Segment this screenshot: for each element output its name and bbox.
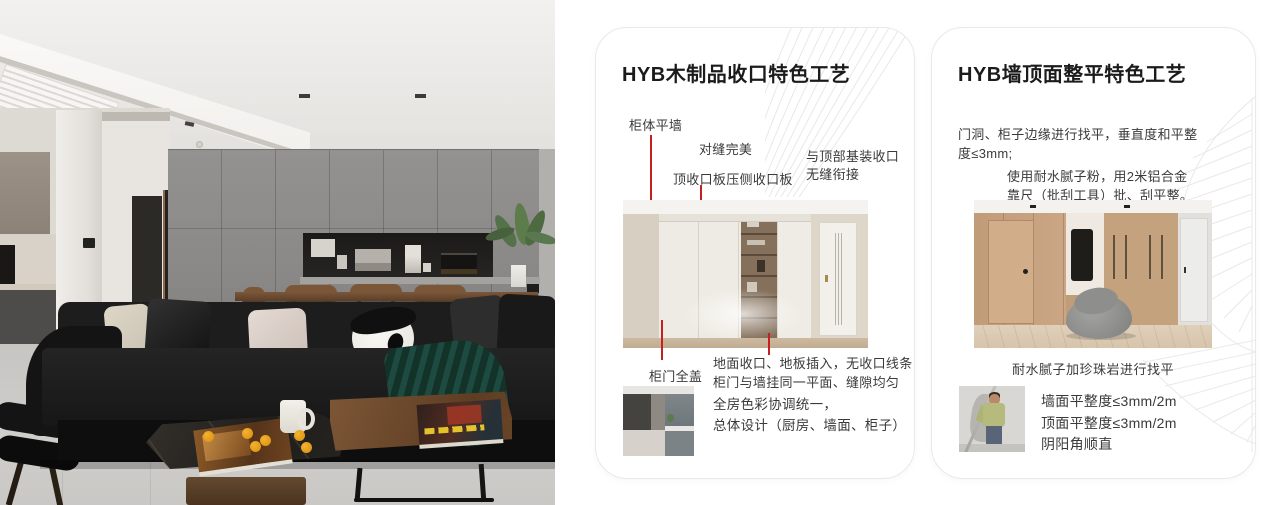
table-crossbar <box>354 498 494 502</box>
pod-coffee-maker <box>405 245 421 273</box>
vintage-radio <box>441 253 477 274</box>
handle-groove <box>1113 235 1115 279</box>
table-leg <box>479 464 487 502</box>
mug-handle <box>297 408 315 430</box>
photo-ceiling <box>974 200 1212 213</box>
door-handle <box>825 275 828 282</box>
magazine-title-text <box>424 424 484 434</box>
thumb-plant <box>667 414 674 422</box>
flatness-specs: 墙面平整度≤3mm/2m 顶面平整度≤3mm/2m 阴阳角顺直 <box>1041 391 1177 456</box>
callout-perfect-seam: 对缝完美 <box>699 139 752 158</box>
magazine <box>417 399 504 449</box>
light-switch <box>83 238 95 248</box>
ceiling-vent <box>299 94 310 98</box>
wardrobe-room-photo <box>974 200 1212 348</box>
coffee-grinder <box>337 255 347 269</box>
summary-line1: 全房色彩协调统一， <box>713 394 906 415</box>
hallway-soffit <box>102 112 170 121</box>
downlight <box>1030 205 1036 208</box>
paragraph1-line1: 门洞、柜子边缘进行找平，垂直度和平整 <box>958 125 1197 144</box>
door-handle <box>1023 269 1028 274</box>
downlight <box>1124 205 1130 208</box>
handle-groove <box>1161 235 1163 279</box>
coffee-bar-niche <box>303 233 493 278</box>
worker-thumbnail <box>959 386 1025 452</box>
thumb-lower-cabinet <box>665 431 694 456</box>
kumquat-fruit <box>203 431 214 442</box>
thumb-floor <box>623 430 667 456</box>
image-caption: 耐水腻子加珍珠岩进行找平 <box>974 359 1212 378</box>
kumquat-fruit <box>260 435 271 446</box>
callout-top-joint: 与顶部基装收口 无缝衔接 <box>806 148 899 184</box>
card1-title: HYB木制品收口特色工艺 <box>622 58 850 87</box>
kitchen-appliance <box>0 245 15 284</box>
ceiling-sensor <box>196 141 203 148</box>
leveling-paragraph-1: 门洞、柜子边缘进行找平，垂直度和平整 度≤3mm; <box>958 125 1197 163</box>
card-wall-leveling-craft: HYB墙顶面整平特色工艺 门洞、柜子边缘进行找平，垂直度和平整 度≤3mm; 使… <box>931 27 1256 479</box>
door-stripe-detail <box>835 233 842 325</box>
page: HYB木制品收口特色工艺 柜体平墙 对缝完美 顶收口板压侧收口板 与顶部基装收口… <box>0 0 1280 505</box>
render-room-door <box>819 222 857 336</box>
render-ceiling <box>623 200 868 215</box>
thumb-dark-wall <box>623 394 653 430</box>
ceiling-vent <box>415 94 426 98</box>
callout-floor-closing: 地面收口、地板插入，无收口线条 柜门与墙挂同一平面、缝隙均匀 <box>713 354 913 392</box>
thumb-gray-cabinet <box>665 394 694 428</box>
white-door <box>1180 218 1208 322</box>
worker-shirt <box>983 403 1005 427</box>
summary-text: 全房色彩协调统一， 总体设计（厨房、墙面、柜子） <box>713 394 906 436</box>
table-leg <box>355 468 363 502</box>
spec-corners: 阴阳角顺直 <box>1041 434 1177 456</box>
callout-floor-line2: 柜门与墙挂同一平面、缝隙均匀 <box>713 373 913 392</box>
paragraph1-line2: 度≤3mm; <box>958 144 1197 163</box>
card-wood-trim-craft: HYB木制品收口特色工艺 柜体平墙 对缝完美 顶收口板压侧收口板 与顶部基装收口… <box>595 27 915 479</box>
callout-top-joint-line2: 无缝衔接 <box>806 166 899 184</box>
plant-vase <box>511 265 526 287</box>
render-top-board <box>659 214 811 222</box>
render-left-wall <box>623 214 661 338</box>
kumquat-fruit <box>242 428 253 439</box>
callout-full-cover-door: 柜门全盖 <box>649 366 702 385</box>
kumquat-fruit <box>250 441 261 452</box>
coffee-cup <box>423 263 431 272</box>
handle-groove <box>1149 235 1151 279</box>
spec-ceiling-flatness: 顶面平整度≤3mm/2m <box>1041 413 1177 435</box>
kitchen-upper-cabinet <box>0 152 50 236</box>
callout-floor-line1: 地面收口、地板插入，无收口线条 <box>713 354 913 373</box>
callout-leader-line <box>661 320 663 360</box>
shelf-books <box>747 240 765 245</box>
potted-plant <box>485 203 555 291</box>
callout-leader-line <box>768 333 770 355</box>
spec-wall-flatness: 墙面平整度≤3mm/2m <box>1041 391 1177 413</box>
callout-top-joint-line1: 与顶部基装收口 <box>806 148 899 166</box>
living-room-photo <box>0 0 555 505</box>
cabinet-render-image <box>623 200 868 348</box>
interior-thumbnail <box>623 386 694 456</box>
chair-leg <box>6 460 24 505</box>
wood-door <box>988 220 1034 324</box>
card2-title: HYB墙顶面整平特色工艺 <box>958 58 1186 87</box>
worker-jeans <box>986 426 1002 444</box>
kumquat-fruit <box>301 442 312 453</box>
callout-cabinet-flush-wall: 柜体平墙 <box>629 115 682 134</box>
hanging-clothes <box>1071 229 1093 281</box>
table-base <box>186 477 306 505</box>
render-light-glow <box>683 288 803 340</box>
door-handle <box>1184 267 1186 273</box>
espresso-machine <box>355 249 391 271</box>
kumquat-fruit <box>294 430 305 441</box>
summary-line2: 总体设计（厨房、墙面、柜子） <box>713 415 906 436</box>
shelf-bottle <box>757 260 765 272</box>
coffee-machine <box>311 239 335 257</box>
magazine-cover <box>447 405 482 425</box>
white-mug <box>280 400 306 433</box>
callout-top-closing-board: 顶收口板压侧收口板 <box>673 169 793 188</box>
handle-groove <box>1125 235 1127 279</box>
paragraph2-line1: 使用耐水腻子粉，用2米铝合金 <box>1007 167 1193 186</box>
